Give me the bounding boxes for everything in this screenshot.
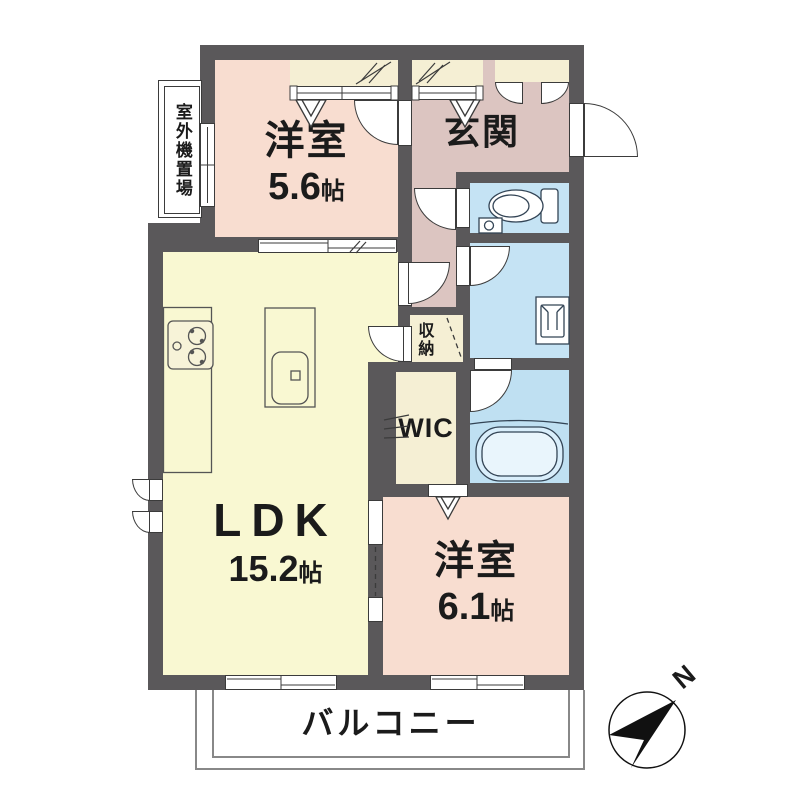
bedroom1-label: 洋室 5.6帖 xyxy=(215,104,398,224)
window-ldk-south xyxy=(225,675,337,690)
closet1-sliding-door xyxy=(290,86,398,100)
window-bedroom1-west xyxy=(200,123,215,207)
balcony-label: バルコニー xyxy=(241,700,541,748)
compass-north-label: N xyxy=(658,651,710,703)
closet-entrance-right xyxy=(495,60,569,82)
north-letter: N xyxy=(667,660,700,694)
entrance-label: 玄関 xyxy=(412,106,552,158)
small-window-arc-upper xyxy=(132,479,150,501)
storage-name: 収納 xyxy=(415,322,432,358)
entrance-door-leaf xyxy=(569,103,584,157)
ldk-label: LDK 15.2帖 xyxy=(168,486,383,598)
bath-door-opening xyxy=(474,358,512,370)
north-arrow-icon xyxy=(609,700,676,768)
slider-ldk-bedroom2-bottom xyxy=(368,597,383,622)
ldk-size: 15.2 xyxy=(228,548,298,589)
outdoor-unit-label: 室外機置場 xyxy=(164,86,200,214)
bedroom1-size: 5.6 xyxy=(268,166,321,208)
wic-name: WIC xyxy=(398,414,453,442)
wic-label: WIC xyxy=(396,372,456,484)
window-bedroom2-south xyxy=(430,675,525,690)
window-ldk-west-lower xyxy=(148,511,163,533)
wic-door-opening xyxy=(428,484,468,497)
compass-icon xyxy=(609,692,685,768)
outdoor-unit-text: 室外機置場 xyxy=(173,103,191,198)
bedroom2-size: 6.1 xyxy=(438,586,491,628)
bedroom2-name: 洋室 xyxy=(434,540,518,582)
small-window-arc-lower xyxy=(132,511,150,533)
entrance-door-arc xyxy=(584,103,638,157)
toilet-door-opening xyxy=(456,188,470,228)
entrance-name: 玄関 xyxy=(444,113,520,151)
slider-bedroom1-ldk xyxy=(258,239,397,253)
bedroom1-name: 洋室 xyxy=(265,120,349,162)
closet-entrance-left xyxy=(412,60,483,86)
ldk-name: LDK xyxy=(213,496,338,544)
window-ldk-west-upper xyxy=(148,479,163,501)
storage-label: 収納 xyxy=(409,318,437,362)
floor-plan: 室外機置場 洋室 5.6帖 玄関 xyxy=(0,0,800,800)
balcony-name: バルコニー xyxy=(301,707,480,741)
closet-bedroom1 xyxy=(290,60,398,86)
room-toilet xyxy=(470,183,569,233)
bedroom2-label: 洋室 6.1帖 xyxy=(383,528,569,640)
washroom-door-opening xyxy=(456,246,470,286)
room-ldk-main xyxy=(163,252,368,675)
closet2-sliding-door xyxy=(412,86,483,100)
bedroom1-door-opening xyxy=(398,100,412,146)
